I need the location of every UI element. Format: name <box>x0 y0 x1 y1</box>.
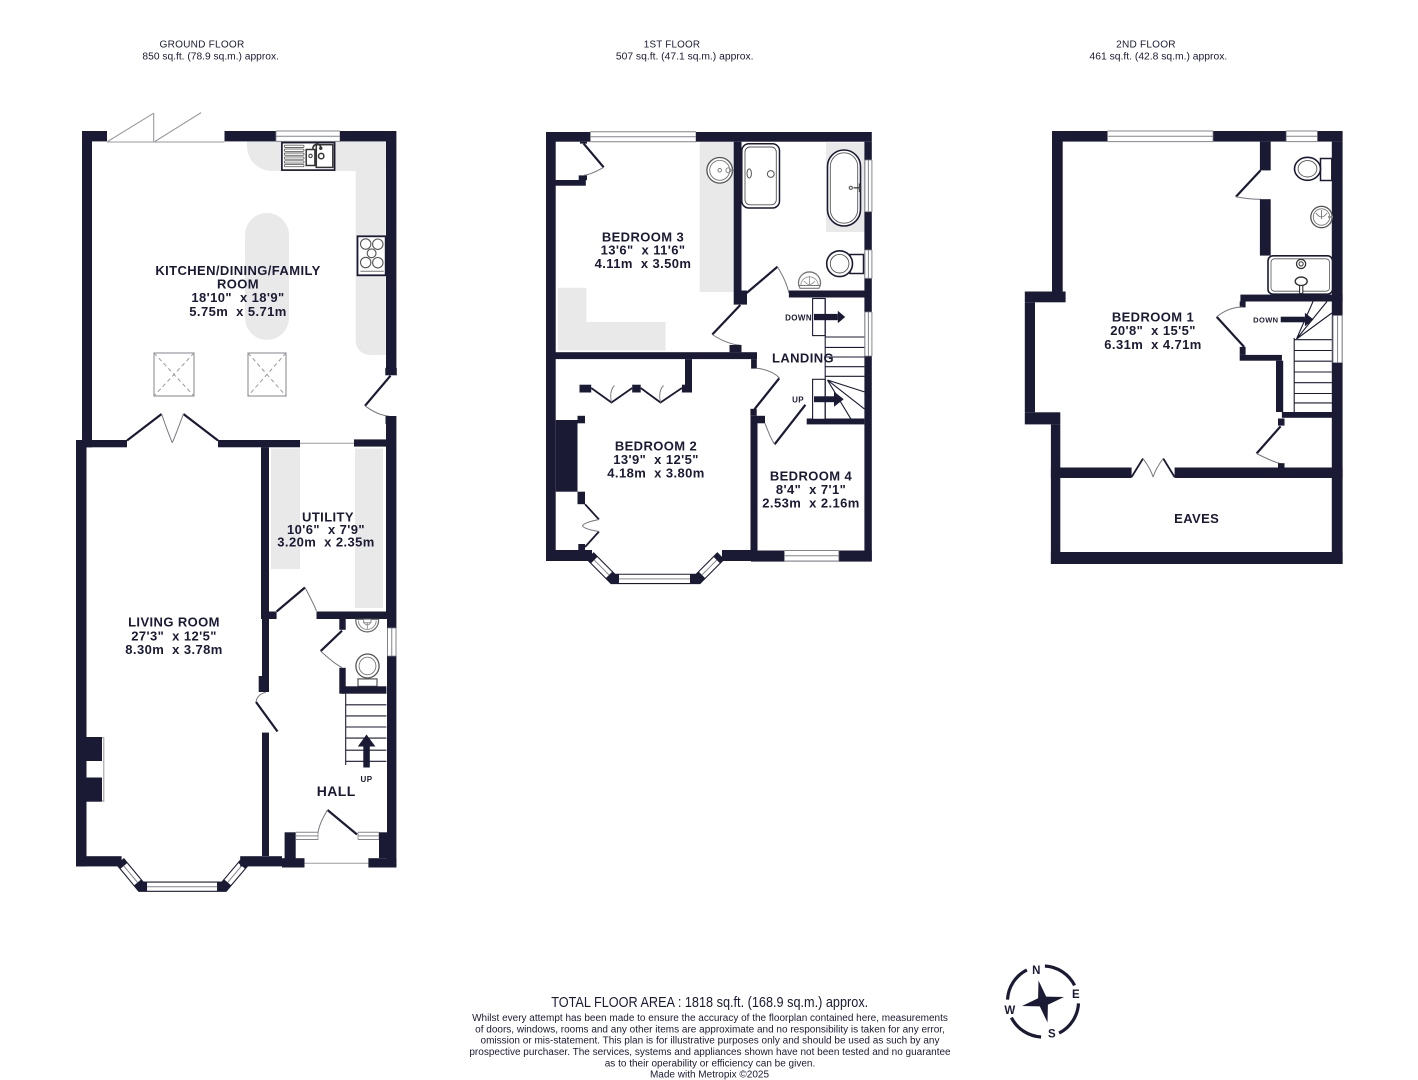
svg-text:UP: UP <box>792 395 804 404</box>
svg-text:DOWN: DOWN <box>1253 316 1278 325</box>
svg-text:3.20m x 2.35m: 3.20m x 2.35m <box>277 535 374 550</box>
svg-text:DOWN: DOWN <box>785 313 812 322</box>
svg-text:2.53m x 2.16m: 2.53m x 2.16m <box>762 496 859 511</box>
svg-text:BEDROOM 1: BEDROOM 1 <box>1112 309 1194 324</box>
svg-text:HALL: HALL <box>317 783 356 799</box>
svg-text:2ND FLOOR: 2ND FLOOR <box>1116 40 1176 51</box>
svg-text:461 sq.ft. (42.8 sq.m.) approx: 461 sq.ft. (42.8 sq.m.) approx. <box>1090 52 1228 63</box>
svg-text:4.11m x 3.50m: 4.11m x 3.50m <box>595 256 692 271</box>
svg-text:GROUND FLOOR: GROUND FLOOR <box>160 40 245 51</box>
svg-text:S: S <box>1048 1029 1056 1041</box>
svg-text:Made with Metropix ©2025: Made with Metropix ©2025 <box>650 1070 770 1080</box>
svg-text:6.31m x 4.71m: 6.31m x 4.71m <box>1104 337 1201 352</box>
svg-text:20'8" x 15'5": 20'8" x 15'5" <box>1110 323 1196 338</box>
svg-text:UP: UP <box>361 775 373 784</box>
svg-text:5.75m x 5.71m: 5.75m x 5.71m <box>189 304 286 319</box>
svg-text:1ST FLOOR: 1ST FLOOR <box>644 40 701 51</box>
svg-text:of doors, windows, rooms and a: of doors, windows, rooms and any other i… <box>475 1024 945 1035</box>
svg-text:TOTAL FLOOR AREA : 1818 sq.ft.: TOTAL FLOOR AREA : 1818 sq.ft. (168.9 sq… <box>551 994 868 1011</box>
svg-text:Whilst every attempt has been: Whilst every attempt has been made to en… <box>472 1013 948 1024</box>
svg-text:507 sq.ft. (47.1 sq.m.) approx: 507 sq.ft. (47.1 sq.m.) approx. <box>616 52 754 63</box>
svg-text:omission or mis-statement. Thi: omission or mis-statement. This plan is … <box>481 1036 940 1047</box>
svg-text:E: E <box>1072 989 1080 1001</box>
svg-text:EAVES: EAVES <box>1174 511 1219 526</box>
svg-text:8.30m x 3.78m: 8.30m x 3.78m <box>125 642 222 657</box>
svg-text:850 sq.ft. (78.9 sq.m.) approx: 850 sq.ft. (78.9 sq.m.) approx. <box>142 52 279 63</box>
svg-text:N: N <box>1032 965 1041 977</box>
svg-text:prospective purchaser. The ser: prospective purchaser. The services, sys… <box>469 1047 951 1058</box>
svg-text:4.18m x 3.80m: 4.18m x 3.80m <box>607 466 704 481</box>
svg-text:18'10" x 18'9": 18'10" x 18'9" <box>191 290 284 305</box>
svg-text:W: W <box>1004 1005 1015 1017</box>
svg-text:LANDING: LANDING <box>772 350 834 365</box>
svg-text:as to their operability or eff: as to their operability or efficiency ca… <box>605 1058 816 1069</box>
